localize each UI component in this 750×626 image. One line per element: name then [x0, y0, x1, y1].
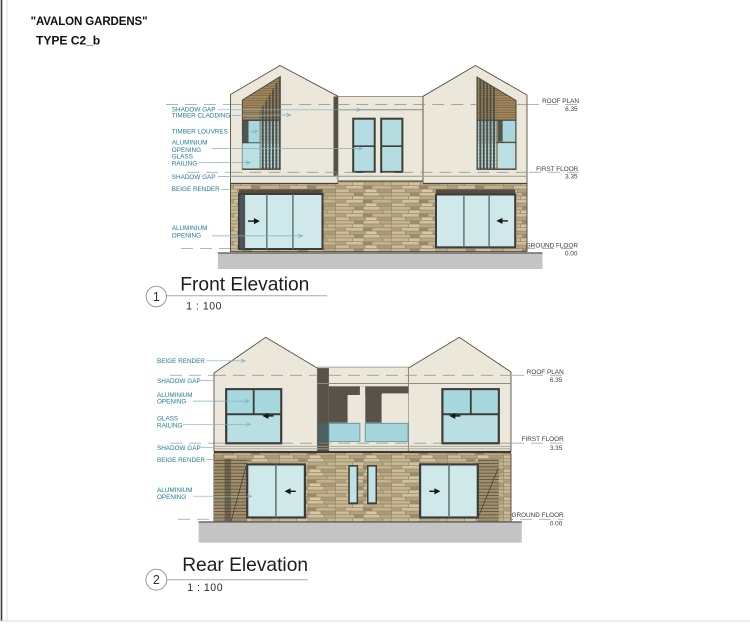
svg-text:ROOF PLAN: ROOF PLAN [542, 98, 579, 105]
svg-text:1 : 100: 1 : 100 [187, 582, 223, 594]
svg-text:BEIGE RENDER: BEIGE RENDER [157, 358, 205, 365]
svg-text:ALUMINIUM: ALUMINIUM [172, 140, 208, 147]
svg-text:GROUND FLOOR: GROUND FLOOR [526, 243, 579, 250]
svg-text:1 : 100: 1 : 100 [186, 300, 222, 312]
svg-text:RAILING: RAILING [172, 161, 197, 168]
svg-text:OPENING: OPENING [172, 233, 201, 240]
svg-text:6.35: 6.35 [565, 106, 578, 113]
svg-text:OPENING: OPENING [157, 494, 186, 501]
svg-text:SHADOW GAP: SHADOW GAP [157, 378, 201, 385]
svg-text:Front Elevation: Front Elevation [180, 274, 309, 295]
svg-text:3.35: 3.35 [550, 445, 563, 452]
svg-text:BEIGE RENDER: BEIGE RENDER [157, 457, 205, 464]
svg-text:FIRST FLOOR: FIRST FLOOR [522, 436, 565, 443]
svg-text:"AVALON GARDENS": "AVALON GARDENS" [31, 16, 148, 28]
svg-text:0.00: 0.00 [550, 521, 563, 528]
svg-text:SHADOW GAP: SHADOW GAP [157, 445, 201, 452]
svg-text:6.35: 6.35 [550, 377, 563, 384]
svg-text:2: 2 [153, 573, 160, 587]
svg-text:1: 1 [153, 290, 160, 304]
svg-text:GROUND FLOOR: GROUND FLOOR [511, 512, 564, 519]
svg-text:GLASS: GLASS [172, 153, 193, 160]
svg-text:ROOF PLAN: ROOF PLAN [527, 369, 564, 376]
svg-text:SHADOW GAP: SHADOW GAP [172, 174, 216, 181]
svg-text:TIMBER CLADDING: TIMBER CLADDING [172, 113, 231, 120]
svg-text:RAILING: RAILING [157, 422, 182, 429]
svg-text:TIMBER LOUVRES: TIMBER LOUVRES [172, 129, 228, 136]
svg-text:0.00: 0.00 [565, 250, 578, 257]
svg-text:OPENING: OPENING [157, 399, 186, 406]
svg-text:BEIGE RENDER: BEIGE RENDER [172, 186, 220, 193]
svg-text:3.35: 3.35 [565, 173, 578, 180]
svg-text:FIRST FLOOR: FIRST FLOOR [536, 166, 579, 173]
svg-text:TYPE C2_b: TYPE C2_b [36, 34, 100, 48]
svg-text:ALUMINIUM: ALUMINIUM [172, 225, 208, 232]
svg-text:Rear Elevation: Rear Elevation [182, 555, 308, 576]
